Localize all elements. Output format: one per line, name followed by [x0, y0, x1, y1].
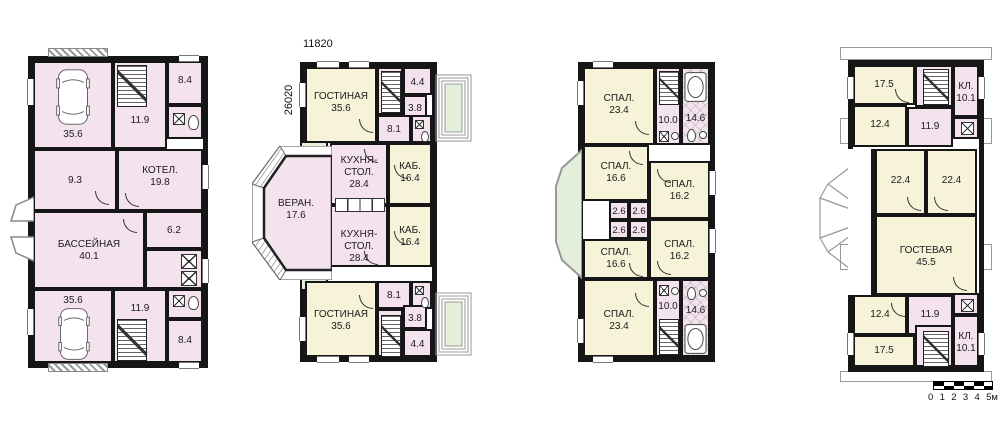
room-area: 14.6 — [684, 113, 707, 125]
room-storage: КЛ. 10.1 — [953, 315, 979, 367]
room-label: 35.6 — [35, 295, 111, 307]
room-area: 19.8 — [120, 177, 200, 189]
room-label: КАБ. 16.4 — [390, 161, 430, 185]
room-stair-hall — [377, 67, 403, 115]
window-marker — [317, 61, 339, 68]
room-closet: 2.6 — [609, 201, 629, 220]
washer-icon — [961, 122, 974, 135]
room-name: КОТЕЛ. — [120, 165, 200, 177]
window-marker — [709, 229, 716, 253]
door-arc — [359, 119, 373, 133]
stairs-icon — [117, 319, 147, 361]
room-area: 11.9 — [910, 121, 950, 133]
garage-apron — [48, 48, 108, 57]
sink-icon — [671, 287, 679, 295]
door-arc — [125, 193, 139, 207]
room-area: 22.4 — [878, 175, 923, 187]
room-closet: 2.6 — [609, 220, 629, 239]
room-label: 9.3 — [35, 175, 115, 187]
room-area: 35.6 — [308, 103, 374, 115]
room-living: ГОСТИНАЯ 35.6 — [305, 281, 377, 357]
stairs-icon — [117, 65, 147, 107]
room-label: 8.4 — [169, 75, 201, 87]
kitchen-unit-icon — [335, 198, 385, 212]
room-label: 11.9 — [115, 115, 165, 127]
washer-icon — [415, 120, 424, 129]
room-label: 12.4 — [855, 309, 905, 321]
car-icon — [55, 68, 91, 126]
room-area: 16.4 — [391, 237, 429, 249]
sink-icon — [671, 132, 679, 140]
room-label: СПАЛ. 16.6 — [585, 161, 647, 185]
room-area: 10.1 — [956, 343, 976, 355]
stairs-icon — [381, 315, 401, 357]
room-label: 8.4 — [169, 335, 201, 347]
bathtub-icon — [684, 71, 707, 103]
door-arc — [934, 197, 948, 211]
room-name: СПАЛ. — [652, 239, 707, 251]
room-area: 23.4 — [586, 105, 652, 117]
room-wc — [953, 117, 979, 139]
room-stair-hall — [377, 309, 403, 357]
window-marker — [202, 165, 209, 189]
room-area: 35.6 — [36, 295, 110, 307]
room-label: КУХНЯ-СТОЛ. 28.4 — [332, 229, 386, 264]
door-arc — [635, 121, 649, 135]
room-label: 17.5 — [855, 345, 913, 357]
room-label: 4.4 — [405, 339, 430, 351]
room-area: 2.6 — [632, 225, 646, 236]
room-garage: 35.6 — [33, 61, 113, 149]
toilet-icon — [188, 115, 199, 130]
scale-tick: 0 — [928, 392, 933, 403]
room-label: СПАЛ. 23.4 — [585, 309, 653, 333]
room-wc — [167, 105, 203, 139]
door-arc — [123, 219, 137, 233]
floor-plan-1: 35.6 11.9 8.4 9.3 КОТЕЛ. 19.8 БАССЕ — [28, 56, 208, 368]
room-label: КОТЕЛ. 19.8 — [119, 165, 201, 189]
door-arc — [907, 197, 921, 211]
scale-bar — [933, 381, 993, 390]
room-area: 28.4 — [333, 179, 385, 191]
room-area: 11.9 — [910, 309, 950, 321]
stairs-icon — [659, 319, 679, 355]
washer-icon — [181, 271, 197, 286]
room-veranda-label: ВЕРАН. 17.6 — [268, 198, 324, 222]
room-label: КЛ. 10.1 — [955, 331, 977, 355]
window-marker — [978, 77, 985, 99]
window-marker — [27, 79, 34, 105]
door-arc — [657, 261, 671, 275]
stairs-icon — [659, 71, 679, 105]
room-area: 8.1 — [380, 290, 408, 302]
room-label: КАБ. 16.4 — [390, 225, 430, 249]
room: 17.5 — [853, 335, 915, 367]
room-label: 2.6 — [631, 206, 647, 217]
room-area: 4.4 — [406, 77, 429, 89]
room-area: 2.6 — [612, 225, 626, 236]
room-area: 17.5 — [856, 79, 912, 91]
room-name: СПАЛ. — [586, 247, 646, 259]
room-area: 23.4 — [586, 321, 652, 333]
window-marker — [299, 317, 306, 341]
roof-outline — [840, 47, 992, 60]
washer-icon — [181, 254, 197, 269]
room-label: ГОСТИНАЯ 35.6 — [307, 309, 375, 333]
room-stair-hall: 11.9 — [113, 61, 167, 149]
room-name: КУХНЯ-СТОЛ. — [333, 229, 385, 253]
room-name: КАБ. — [391, 161, 429, 173]
room-area: 10.1 — [956, 93, 976, 105]
room-label: 8.1 — [379, 124, 409, 136]
room-bedroom: СПАЛ. 16.2 — [649, 161, 710, 219]
room-name: ГОСТЕВАЯ — [878, 245, 974, 257]
room-name: КУХНЯ-СТОЛ. — [333, 155, 385, 179]
room-area: 17.6 — [286, 210, 305, 221]
bathtub-icon — [684, 323, 707, 355]
toilet-icon — [421, 297, 429, 308]
room-label: СПАЛ. 16.6 — [585, 247, 647, 271]
washer-icon — [961, 299, 974, 312]
room: 12.4 — [853, 105, 907, 147]
room: 3.8 — [403, 305, 427, 329]
scale-tick: 4 — [975, 392, 980, 403]
room: 12.4 — [853, 295, 907, 335]
door-arc — [953, 277, 967, 291]
washer-icon — [173, 113, 185, 125]
room-storage: КЛ. 10.1 — [953, 65, 979, 117]
room-name: КЛ. — [956, 331, 976, 343]
room-guest: ГОСТЕВАЯ 45.5 — [875, 215, 977, 295]
room-area: 16.2 — [652, 251, 707, 263]
room-wc — [411, 115, 432, 143]
room-living: ГОСТИНАЯ 35.6 — [305, 67, 377, 143]
scale-tick: 3 — [963, 392, 968, 403]
room-area: 8.4 — [170, 335, 200, 347]
room-label: СПАЛ. 16.2 — [651, 239, 708, 263]
door-arc — [635, 293, 649, 307]
room-label: 14.6 — [683, 305, 708, 317]
room-name: ВЕРАН. — [278, 198, 314, 209]
room-area: 16.4 — [391, 173, 429, 185]
room-boiler: КОТЕЛ. 19.8 — [117, 149, 203, 211]
room-stair-hall — [915, 325, 953, 367]
room-label: 22.4 — [877, 175, 924, 187]
door-arc — [895, 89, 909, 103]
room-name: БАССЕЙНАЯ — [36, 239, 142, 251]
room-bedroom: СПАЛ. 23.4 — [583, 67, 655, 145]
room-area: 6.2 — [148, 225, 200, 237]
room: 8.4 — [167, 319, 203, 363]
room-area: 22.4 — [929, 175, 974, 187]
window-marker — [349, 61, 369, 68]
toilet-icon — [188, 296, 199, 310]
room-wc — [145, 249, 203, 289]
room-bedroom: СПАЛ. 23.4 — [583, 279, 655, 357]
room-name: КАБ. — [391, 225, 429, 237]
room-area: 3.8 — [406, 313, 424, 325]
room-area: 40.1 — [36, 251, 142, 263]
room-area: 12.4 — [856, 119, 904, 131]
room-stair-hall: 10.0 — [655, 279, 681, 357]
room-hall: 11.9 — [907, 107, 953, 147]
room-name: КЛ. — [956, 81, 976, 93]
room-closet: 2.6 — [629, 220, 649, 239]
bay-window — [10, 196, 34, 262]
room-label: 12.4 — [855, 119, 905, 131]
room-area: 10.0 — [658, 115, 678, 127]
room: 4.4 — [403, 329, 432, 357]
room-area: 11.9 — [116, 303, 164, 315]
room-area: 17.5 — [856, 345, 912, 357]
car-icon — [57, 307, 91, 361]
room-area: 3.8 — [406, 103, 424, 115]
scale-bar-ticks: 0 1 2 3 4 5м — [928, 392, 998, 403]
room-stair-hall: 10.0 — [655, 67, 681, 145]
floor-plan-4: 17.5 КЛ. 10.1 12.4 11.9 22.4 22.4 — [848, 60, 984, 372]
room-area: 9.3 — [36, 175, 114, 187]
sink-icon — [699, 289, 707, 297]
washer-icon — [173, 295, 185, 307]
washer-icon — [659, 285, 669, 296]
window-marker — [577, 81, 584, 105]
room-label: СПАЛ. 16.2 — [651, 179, 708, 203]
room: 4.4 — [403, 67, 432, 95]
inset-wall — [871, 149, 877, 295]
room-pool: БАССЕЙНАЯ 40.1 — [33, 211, 145, 289]
dimension-label-height: 26020 — [283, 72, 295, 128]
room-label: 2.6 — [611, 225, 627, 236]
room-label: 8.1 — [379, 290, 409, 302]
room-label: 22.4 — [928, 175, 975, 187]
window-marker — [299, 83, 306, 107]
room-cabinet: КАБ. 16.4 — [388, 143, 432, 205]
room-area: 45.5 — [878, 257, 974, 269]
window-marker — [202, 259, 209, 283]
room-label: ГОСТЕВАЯ 45.5 — [877, 245, 975, 269]
dimension-label-width: 11820 — [303, 38, 333, 50]
room-label: 10.0 — [657, 301, 679, 313]
room-label: 11.9 — [909, 309, 951, 321]
garage-apron — [48, 363, 108, 372]
scale-tick: 1 — [940, 392, 945, 403]
room-label: 35.6 — [35, 129, 111, 141]
room-closet: 2.6 — [629, 201, 649, 220]
window-marker — [27, 309, 34, 335]
roof-gap — [848, 149, 853, 295]
stairs-icon — [923, 331, 949, 367]
room-bathroom: 14.6 — [681, 279, 710, 357]
stairs-icon — [923, 69, 949, 105]
room: 9.3 — [33, 149, 117, 211]
room-label: 10.0 — [657, 115, 679, 127]
room-label: КУХНЯ-СТОЛ. 28.4 — [332, 155, 386, 190]
room-name: ГОСТИНАЯ — [308, 309, 374, 321]
window-marker — [593, 356, 613, 363]
room-garage: 35.6 — [33, 289, 113, 363]
terrace-steps — [435, 74, 472, 142]
stairs-icon — [381, 71, 401, 113]
room-area: 28.4 — [333, 253, 385, 265]
terrace-steps — [435, 292, 472, 356]
room-label: 14.6 — [683, 113, 708, 125]
room-stair-hall: 11.9 — [113, 289, 167, 363]
room-label: 6.2 — [147, 225, 201, 237]
room-kitchen-dining: КУХНЯ-СТОЛ. 28.4 — [330, 143, 388, 205]
room-area: 16.6 — [586, 173, 646, 185]
floor-plans-drawing: 35.6 11.9 8.4 9.3 КОТЕЛ. 19.8 БАССЕ — [0, 0, 1000, 448]
room-bathroom: 14.6 — [681, 67, 710, 145]
room-area: 16.2 — [652, 191, 707, 203]
room-label: БАССЕЙНАЯ 40.1 — [35, 239, 143, 263]
window-marker — [179, 55, 199, 62]
room: 8.4 — [167, 61, 203, 105]
room-area: 2.6 — [612, 206, 626, 217]
floor-plan-3: СПАЛ. 23.4 10.0 14.6 СПАЛ. 16.6 — [578, 62, 715, 362]
room-area: 2.6 — [632, 206, 646, 217]
toilet-icon — [687, 129, 696, 142]
room-label: КЛ. 10.1 — [955, 81, 977, 105]
room-bedroom: СПАЛ. 16.2 — [649, 219, 710, 279]
scale-tick: 5м — [986, 392, 998, 403]
window-marker — [978, 333, 985, 355]
toilet-icon — [421, 131, 429, 142]
room-cabinet: КАБ. 16.4 — [388, 205, 432, 267]
room: 22.4 — [875, 149, 926, 215]
room: 17.5 — [853, 65, 915, 105]
room-area: 12.4 — [856, 309, 904, 321]
room-label: 17.5 — [855, 79, 913, 91]
room-stair-hall — [915, 65, 953, 107]
door-arc — [359, 295, 373, 309]
room-name: ГОСТИНАЯ — [308, 91, 374, 103]
washer-icon — [415, 286, 424, 295]
window-marker — [593, 61, 613, 68]
sink-icon — [699, 131, 707, 139]
room-wc — [167, 289, 203, 319]
window-marker — [847, 333, 854, 355]
scale-tick: 2 — [951, 392, 956, 403]
room-name: СПАЛ. — [586, 309, 652, 321]
room-bedroom: СПАЛ. 16.6 — [583, 239, 649, 279]
window-marker — [317, 356, 339, 363]
room-area: 11.9 — [116, 115, 164, 127]
room-kitchen-dining: КУХНЯ-СТОЛ. 28.4 — [330, 205, 388, 267]
room-area: 35.6 — [308, 321, 374, 333]
room-name: СПАЛ. — [586, 93, 652, 105]
room-area: 35.6 — [36, 129, 110, 141]
room-label: 3.8 — [405, 313, 425, 325]
room-label: СПАЛ. 23.4 — [585, 93, 653, 117]
washer-icon — [659, 131, 669, 142]
room-area: 8.1 — [380, 124, 408, 136]
window-marker — [179, 362, 199, 369]
room-label: 3.8 — [405, 103, 425, 115]
room-area: 10.0 — [658, 301, 678, 313]
room-label: 11.9 — [909, 121, 951, 133]
toilet-icon — [687, 287, 696, 300]
room-label: 2.6 — [611, 206, 627, 217]
room-label: ГОСТИНАЯ 35.6 — [307, 91, 375, 115]
door-arc — [95, 191, 109, 205]
room-wc — [953, 293, 979, 315]
room-area: 8.4 — [170, 75, 200, 87]
room: 8.1 — [377, 115, 411, 143]
room-name: СПАЛ. — [652, 179, 707, 191]
window-marker — [847, 77, 854, 99]
room-label: 4.4 — [405, 77, 430, 89]
room-area: 14.6 — [684, 305, 707, 317]
window-marker — [709, 171, 716, 195]
room: 22.4 — [926, 149, 977, 215]
room-label: 11.9 — [115, 303, 165, 315]
window-marker — [349, 356, 369, 363]
room-label: 2.6 — [631, 225, 647, 236]
room-name: СПАЛ. — [586, 161, 646, 173]
balcony-bay — [554, 148, 582, 280]
room-bedroom: СПАЛ. 16.6 — [583, 145, 649, 201]
room: 6.2 — [145, 211, 203, 249]
window-marker — [577, 319, 584, 343]
room-area: 4.4 — [406, 339, 429, 351]
room-area: 16.6 — [586, 259, 646, 271]
